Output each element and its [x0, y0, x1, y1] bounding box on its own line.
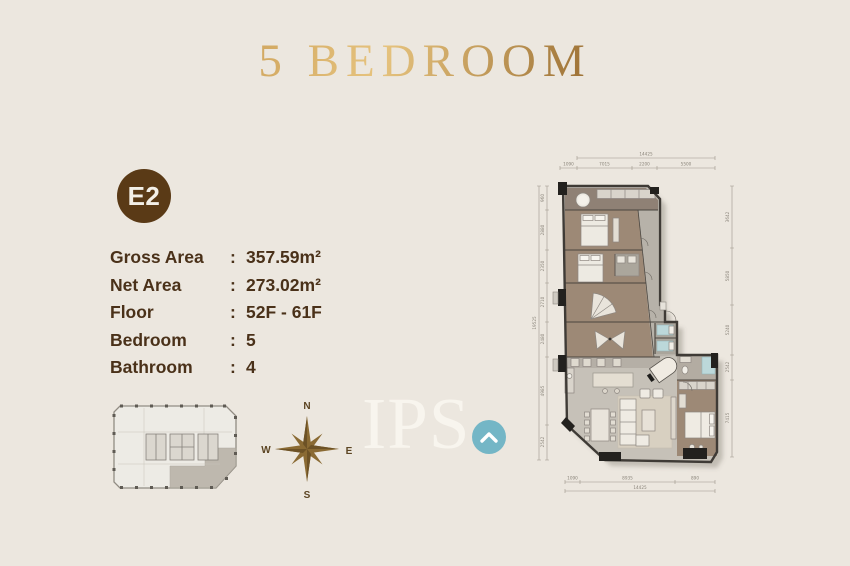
kitchen-island — [593, 373, 633, 387]
compass-star-icon — [275, 416, 339, 482]
toilet — [682, 366, 688, 374]
dining-chair — [611, 436, 616, 441]
dining-table — [591, 409, 609, 441]
dim-label: 7015 — [599, 162, 610, 167]
vanity-sink — [680, 357, 691, 363]
dim-label: 3642 — [725, 211, 730, 222]
compass-north-label: N — [303, 401, 310, 412]
chevron-up-icon — [476, 426, 502, 448]
compass-west-label: W — [261, 445, 271, 456]
detail-value: 273.02m² — [246, 275, 321, 296]
stool-1 — [603, 389, 608, 394]
dim-top-total: 14425 — [639, 152, 653, 157]
dim-label: 2200 — [639, 162, 650, 167]
page-title: 5 BEDROOM — [0, 34, 850, 88]
dining-chair — [585, 412, 590, 417]
dining-chair — [611, 428, 616, 433]
dim-label: 960 — [540, 194, 545, 202]
detail-value: 5 — [246, 330, 256, 351]
brochure-page: 5 BEDROOM E2 Gross Area : 357.59m² Net A… — [0, 0, 850, 566]
watermark-text: IPS — [362, 384, 471, 464]
unit-badge: E2 — [117, 169, 171, 223]
dim-label: 1090 — [563, 162, 574, 167]
detail-value: 4 — [246, 357, 256, 378]
watermark-logo-circle — [472, 420, 506, 454]
dim-label: 5240 — [725, 324, 730, 335]
dining-chair — [611, 412, 616, 417]
sink — [567, 374, 572, 379]
dim-label: 2542 — [540, 436, 545, 447]
dim-label: 2350 — [540, 260, 545, 271]
detail-label: Net Area — [110, 275, 230, 296]
dining-chair — [585, 428, 590, 433]
compass-east-label: E — [346, 446, 353, 457]
appliance-4 — [613, 359, 621, 367]
wardrobe-row — [597, 190, 655, 199]
bench-1 — [613, 218, 619, 242]
dim-label: 7415 — [725, 412, 730, 423]
dim-label: 5500 — [681, 162, 692, 167]
dining-chair — [611, 420, 616, 425]
detail-label: Gross Area — [110, 247, 230, 268]
detail-row-floor: Floor : 52F - 61F — [110, 302, 322, 320]
detail-colon: : — [230, 357, 246, 378]
detail-row-gross-area: Gross Area : 357.59m² — [110, 247, 322, 265]
detail-row-bedroom: Bedroom : 5 — [110, 330, 322, 348]
dim-label: 4985 — [540, 385, 545, 396]
building-key-plan — [110, 402, 240, 492]
dining-chair — [585, 420, 590, 425]
stool-2 — [615, 389, 620, 394]
detail-row-net-area: Net Area : 273.02m² — [110, 275, 322, 293]
detail-row-bathroom: Bathroom : 4 — [110, 357, 322, 375]
dim-label: 2480 — [540, 333, 545, 344]
armchair-2 — [653, 389, 663, 398]
coffee-table — [642, 410, 655, 431]
detail-colon: : — [230, 247, 246, 268]
tv-console — [671, 397, 676, 439]
detail-label: Bedroom — [110, 330, 230, 351]
appliance-3 — [597, 359, 605, 367]
detail-label: Floor — [110, 302, 230, 323]
appliance-2 — [583, 359, 591, 367]
unit-badge-label: E2 — [128, 181, 161, 212]
detail-colon: : — [230, 275, 246, 296]
sofa-chaise — [636, 435, 649, 446]
dim-label: 2880 — [540, 224, 545, 235]
dim-label: 890 — [691, 476, 699, 481]
compass-rose: N S W E — [259, 396, 355, 502]
compass-south-label: S — [304, 490, 311, 501]
dim-label: 2710 — [540, 296, 545, 307]
detail-value: 357.59m² — [246, 247, 321, 268]
armchair-1 — [640, 389, 650, 398]
detail-colon: : — [230, 330, 246, 351]
dim-label: 1090 — [567, 476, 578, 481]
bath-sink-1 — [669, 326, 674, 334]
dim-bottom-total: 14425 — [633, 485, 647, 490]
appliance-1 — [571, 359, 579, 367]
floor-plan: 14425 1090 7015 2200 5500 1090 8935 890 … — [525, 142, 775, 512]
dim-label: 5850 — [725, 270, 730, 281]
dresser-5 — [679, 394, 686, 408]
dim-label: 2542 — [725, 361, 730, 372]
dim-left-total: 19525 — [532, 316, 537, 330]
detail-label: Bathroom — [110, 357, 230, 378]
elevator-cores — [146, 434, 218, 460]
bath-sink-2 — [669, 342, 674, 350]
detail-value: 52F - 61F — [246, 302, 322, 323]
dim-label: 8935 — [622, 476, 633, 481]
detail-colon: : — [230, 302, 246, 323]
unit-details: Gross Area : 357.59m² Net Area : 273.02m… — [110, 247, 322, 385]
